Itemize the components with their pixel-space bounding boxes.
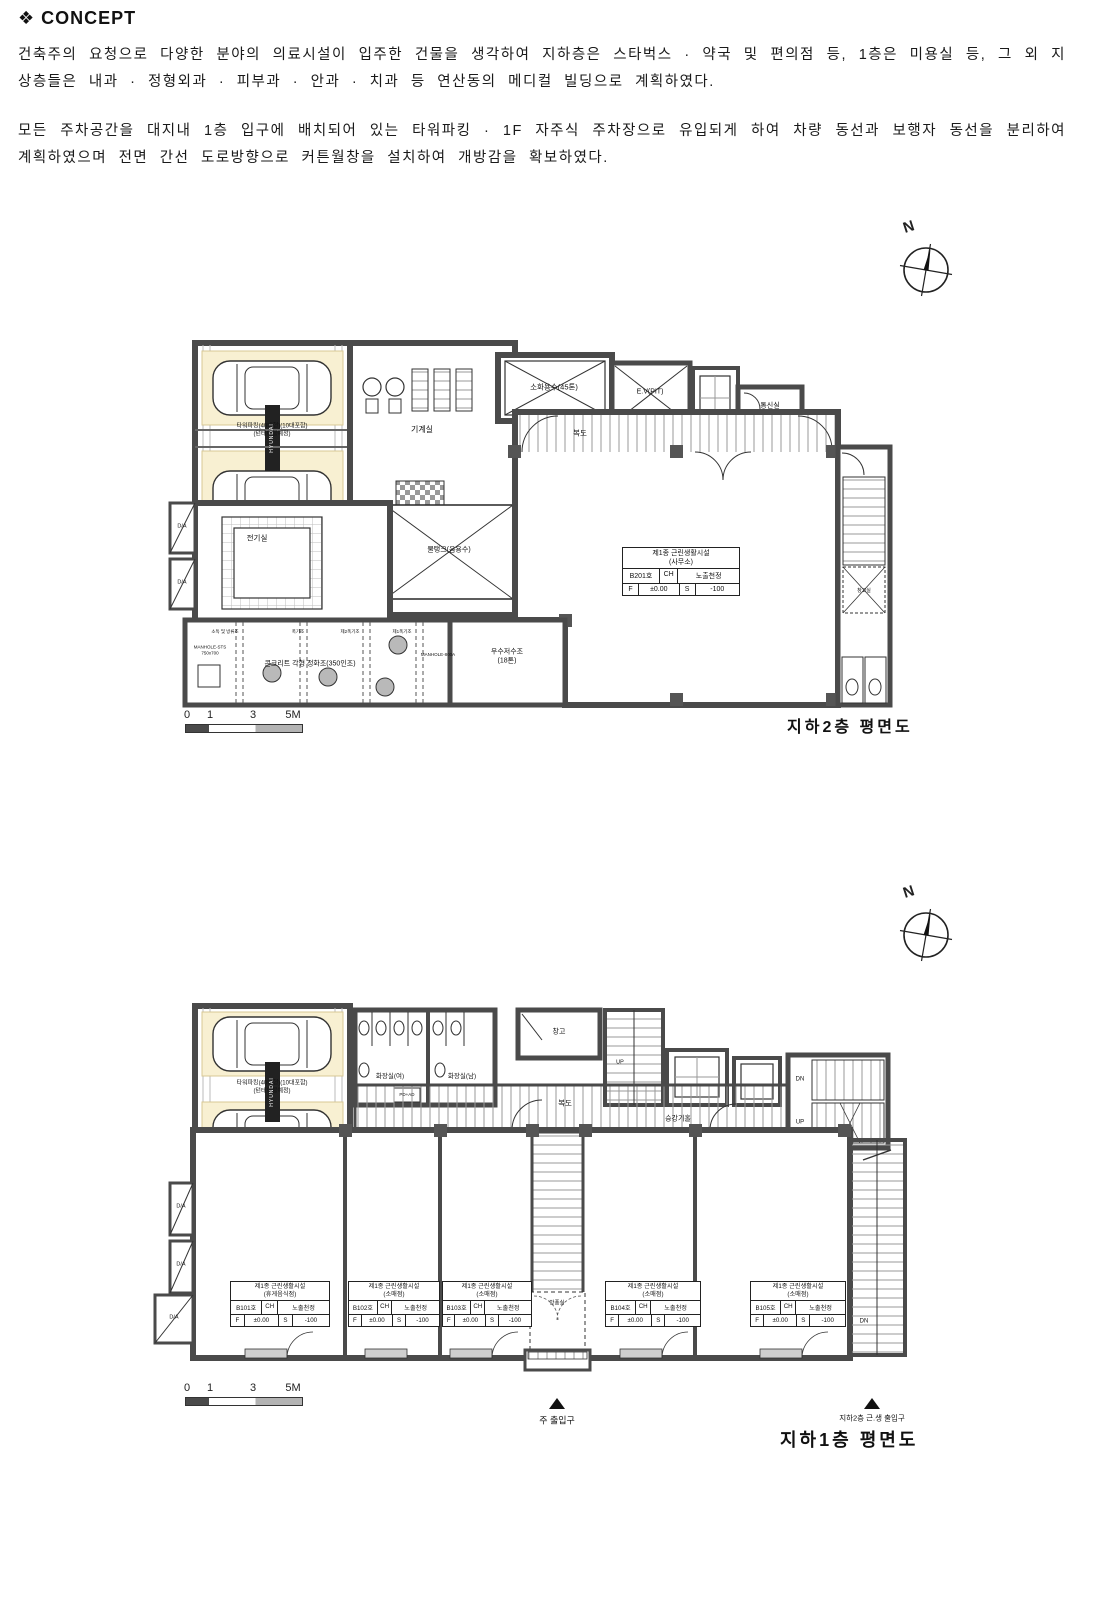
scale-5m: 5M [285, 709, 300, 721]
dn-label-outer-stair: DN [860, 1318, 869, 1326]
corridor-label-b2: 복도 [573, 428, 587, 437]
diamond-icon: ❖ [18, 8, 35, 28]
scale-bar-b1: 0 1 3 5M [185, 1382, 303, 1406]
outer-right-stair [850, 1140, 905, 1355]
unit-table-b102: 제1종 근린생활시설(소매점) B102호CH노출천정 F±0.00S-100 [348, 1281, 440, 1327]
septic-cell-label-4: 제1폭기조 [392, 629, 411, 635]
b2-entrance-arrow-icon [864, 1398, 880, 1409]
elevator-hall-label: 승강기홀 [665, 1116, 691, 1125]
scale-3: 3 [250, 1382, 256, 1394]
compass-icon: N [893, 880, 959, 966]
floor-plan-b2: 타워파킹(40대형)(10대포함)(턴테이블예정) HYUNDAI 기계실 소화… [150, 335, 960, 765]
septic-cell-label-2: 폭기조 [292, 629, 304, 635]
toilet-men-label: 화장실(남) [448, 1073, 476, 1081]
floor-plan-b1: 타워파킹(40대형)(10대포함)(턴테이블예정) HYUNDAI 화장실(여)… [150, 1000, 970, 1460]
pd-ad-label: PD+AD [399, 1092, 414, 1098]
scale-bar-b2: 0 1 3 5M [185, 709, 303, 733]
concept-heading: ❖ CONCEPT [18, 8, 136, 29]
da-shafts [170, 503, 195, 609]
storage-label-b1: 창고 [553, 1029, 566, 1038]
unit-table-b101: 제1종 근린생활시설(휴게음식점) B101호CH노출천정 F±0.00S-10… [230, 1281, 330, 1327]
shops-block [193, 1124, 851, 1370]
svg-text:N: N [901, 217, 917, 237]
unit-room-row: B201호CH노출천정 [623, 569, 739, 584]
unit-table-b103: 제1종 근린생활시설(소매점) B103호CH노출천정 F±0.00S-100 [442, 1281, 532, 1327]
scale-3: 3 [250, 709, 256, 721]
scale-5m: 5M [285, 1382, 300, 1394]
north-compass-b2: N [893, 215, 959, 306]
svg-text:N: N [901, 882, 917, 902]
concept-heading-text: CONCEPT [41, 8, 136, 28]
comm-room-label: 통신실 [760, 403, 779, 412]
septic-cell-label-1: 소독 및 방류조 [211, 629, 238, 635]
unit-level-row: F±0.00S-100 [623, 584, 739, 595]
main-entrance-arrow-icon [549, 1398, 565, 1409]
concept-paragraph-1: 건축주의 요청으로 다양한 분야의 의료시설이 입주한 건물을 생각하여 지하층… [18, 42, 1066, 96]
electric-room-label: 전기실 [247, 533, 268, 542]
concept-paragraph-2: 모든 주차공간을 대지내 1층 입구에 배치되어 있는 타워파킹 · 1F 자주… [18, 118, 1066, 172]
up-label-top-stair: UP [616, 1060, 624, 1067]
turntable-brand-label: HYUNDAI [269, 1077, 275, 1107]
da-label-1: D/A [177, 524, 186, 531]
da-label-2: D/A [177, 580, 186, 587]
plan-title-b1: 지하1층 평면도 [780, 1426, 918, 1452]
b2-entrance-label: 지하2층 근.생 출입구 [839, 1413, 905, 1422]
corridor-label-b1: 복도 [558, 1098, 572, 1107]
da-label-2: D/A [176, 1262, 185, 1269]
main-entrance-label: 주 출입구 [539, 1415, 575, 1426]
water-tank-label: 물탱크(음용수) [427, 547, 470, 556]
electric-room [195, 503, 390, 623]
scale-0: 0 [184, 1382, 190, 1394]
dn-label: DN [796, 1076, 805, 1084]
machine-room-label: 기계실 [411, 425, 433, 435]
floor-plan-b2-drawing [150, 335, 960, 765]
fire-water-label: 소화용수(45톤) [530, 382, 578, 391]
north-compass-b1: N [893, 880, 959, 971]
windbreak-label: 방풍실 [549, 1301, 564, 1308]
turntable-brand-label: HYUNDAI [269, 423, 275, 453]
rain-tank-label: 우수저수조(18톤) [491, 648, 523, 666]
unit-use: 제1종 근린생활시설(사무소) [623, 548, 739, 569]
manhole-800a-label: MANHOLE-800A [421, 652, 455, 658]
storage-room-label-b2: 창고실 [857, 588, 871, 594]
page: ❖ CONCEPT 건축주의 요청으로 다양한 분야의 의료시설이 입주한 건물… [0, 0, 1100, 1613]
scale-bar-graphic [185, 1397, 303, 1406]
right-stair-wing [838, 447, 890, 705]
plan-title-b2: 지하2층 평면도 [787, 713, 913, 737]
unit-table-b201: 제1종 근린생활시설(사무소) B201호CH노출천정 F±0.00S-100 [622, 547, 740, 596]
up-label-right-stair: UP [796, 1119, 804, 1127]
scale-1: 1 [207, 709, 213, 721]
toilet-women-label: 화장실(여) [376, 1073, 404, 1081]
unit-table-b104: 제1종 근린생활시설(소매점) B104호CH노출천정 F±0.00S-100 [605, 1281, 701, 1327]
da-label-1: D/A [176, 1204, 185, 1211]
compass-icon: N [893, 215, 959, 301]
septic-cell-label-3: 제2폭기조 [340, 629, 359, 635]
septic-label: 콘크리트 각형 정화조(350인조) [264, 661, 355, 670]
scale-0: 0 [184, 709, 190, 721]
ev-pit-label: E.V(PIT) [637, 389, 664, 398]
scale-1: 1 [207, 1382, 213, 1394]
scale-bar-graphic [185, 724, 303, 733]
da-label-3: D/A [169, 1315, 178, 1322]
unit-table-b105: 제1종 근린생활시설(소매점) B105호CH노출천정 F±0.00S-100 [750, 1281, 846, 1327]
manhole-sts-label: MANHOLE-STS750x700 [194, 644, 227, 655]
